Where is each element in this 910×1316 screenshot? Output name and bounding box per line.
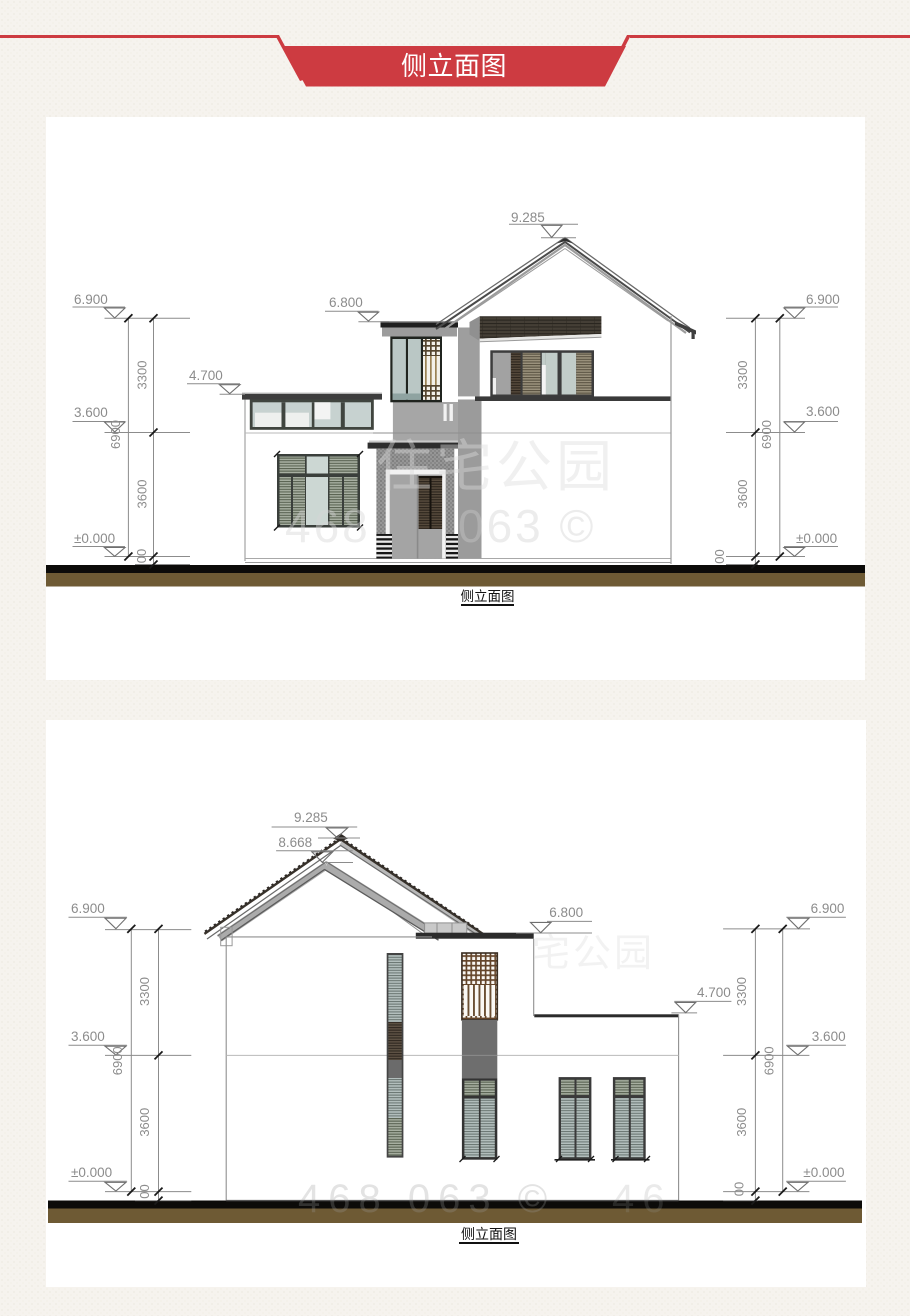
svg-text:468 063 ©: 468 063 © xyxy=(298,1177,555,1221)
svg-text:6.800: 6.800 xyxy=(549,905,583,920)
svg-text:6900: 6900 xyxy=(762,1046,777,1075)
svg-text:3600: 3600 xyxy=(735,480,750,509)
svg-text:9.285: 9.285 xyxy=(511,210,545,225)
svg-text:6900: 6900 xyxy=(108,420,123,449)
svg-text:9.285: 9.285 xyxy=(294,810,328,825)
svg-text:6.900: 6.900 xyxy=(74,292,108,307)
svg-text:6.800: 6.800 xyxy=(329,295,363,310)
svg-text:3300: 3300 xyxy=(135,361,150,390)
svg-text:3.600: 3.600 xyxy=(806,404,840,419)
svg-text:3300: 3300 xyxy=(735,361,750,390)
svg-text:6.900: 6.900 xyxy=(71,901,105,916)
svg-text:宅公园: 宅公园 xyxy=(532,933,655,975)
svg-text:±0.000: ±0.000 xyxy=(71,1165,112,1180)
svg-text:00: 00 xyxy=(137,1184,152,1198)
svg-text:00: 00 xyxy=(712,549,727,563)
svg-text:6900: 6900 xyxy=(110,1046,125,1075)
svg-text:住宅公园: 住宅公园 xyxy=(376,435,616,498)
svg-text:8.668: 8.668 xyxy=(278,835,312,850)
svg-text:00: 00 xyxy=(134,549,149,563)
svg-text:4.700: 4.700 xyxy=(697,985,731,1000)
svg-text:3300: 3300 xyxy=(734,977,749,1006)
svg-text:3600: 3600 xyxy=(135,480,150,509)
svg-text:6.900: 6.900 xyxy=(806,292,840,307)
svg-text:3.600: 3.600 xyxy=(74,405,108,420)
svg-text:3300: 3300 xyxy=(137,977,152,1006)
svg-text:3600: 3600 xyxy=(137,1108,152,1137)
svg-text:±0.000: ±0.000 xyxy=(803,1165,844,1180)
svg-text:3.600: 3.600 xyxy=(71,1029,105,1044)
svg-text:±0.000: ±0.000 xyxy=(796,531,837,546)
svg-text:00: 00 xyxy=(732,1182,747,1196)
svg-text:3600: 3600 xyxy=(734,1108,749,1137)
svg-text:6.900: 6.900 xyxy=(811,901,845,916)
svg-text:3.600: 3.600 xyxy=(812,1029,846,1044)
svg-text:±0.000: ±0.000 xyxy=(74,531,115,546)
svg-text:侧立面图: 侧立面图 xyxy=(401,51,507,81)
svg-text:46: 46 xyxy=(612,1177,673,1221)
svg-text:6900: 6900 xyxy=(759,420,774,449)
svg-text:063 ©: 063 © xyxy=(458,500,596,552)
svg-text:4.700: 4.700 xyxy=(189,368,223,383)
svg-text:468: 468 xyxy=(285,500,371,552)
